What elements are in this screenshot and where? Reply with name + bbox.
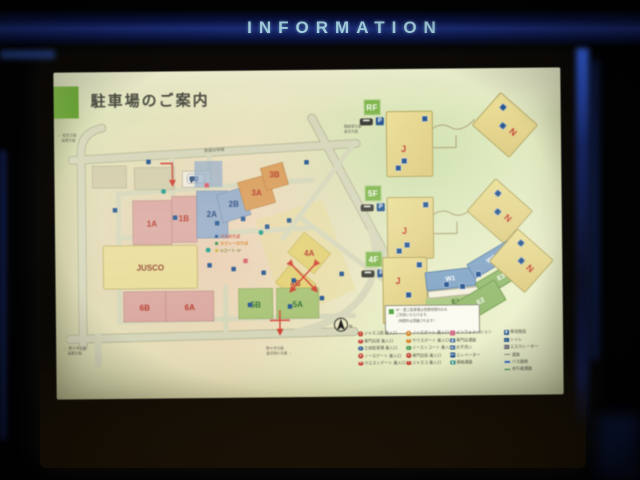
note-lines: 4F・屋上駐車場は営業時間内のみ ご利用いただけます。 （時間外は閉鎖されます） [396,308,448,332]
svg-text:4A: 4A [304,249,315,258]
elevator-icon [444,282,450,288]
legend-icon: S [406,338,411,343]
photo-of-information-sign: INFORMATION 駐車場のご案内 [0,0,640,480]
svg-text:1A: 1A [147,220,158,229]
map-legend: J ジャスコ前 乗入口 S 専門店前 乗入口 P 立体駐車場 乗入口 N ノース… [358,329,562,373]
parking-icon-small [404,242,410,248]
legend-icon: P [358,346,363,351]
legend-icon: 通 [450,338,455,343]
parking-guide-panel: 駐車場のご案内 [53,67,563,399]
information-header-band: INFORMATION [0,10,640,46]
legend-icon: W [358,361,363,366]
legend-item: N ノースポート 乗入口 [406,331,448,336]
floor-plans-panel: RF P J N 5F P J [354,92,564,396]
legend-item: P 立体駐車場 乗入口 [358,346,404,351]
legend-icon: 階 [504,330,509,335]
svg-text:← 松任方面: ← 松任方面 [58,132,77,137]
legend-column-4: 階 専用階段 ト トイレ ES エスカレーター 道路 バス路線 [504,329,562,371]
car-icon [360,118,373,125]
parking-icon-small [499,122,507,130]
legend-item: ES エスカレーター [504,344,562,349]
legend-item: S サウスポート 乗入口 [406,338,448,343]
floor-label-4f: 4F [365,251,382,267]
svg-text:6A: 6A [185,303,196,312]
neon-glow-bottom-right [598,415,640,480]
parking-icon: P [377,203,385,211]
svg-text:高尾方面: 高尾方面 [58,137,76,142]
jusco-label: JUSCO [137,264,165,273]
floor-label-rf: RF [364,99,381,115]
legend-item: i インフォメーション [450,330,502,335]
legend-item: 歩行者通路 [504,366,562,371]
svg-text:県道59号線: 県道59号線 [204,146,225,153]
svg-text:タクシーのりば: タクシーのりば [220,240,248,246]
legend-icon: ES [504,345,509,350]
information-title: INFORMATION [197,18,443,38]
svg-text:Gコート 1F: Gコート 1F [220,248,241,253]
elevator-icon [493,208,501,216]
elevator-icon [475,271,481,277]
legend-icon: N [406,331,411,336]
legend-icon: 連 [450,360,455,365]
svg-text:N: N [349,324,352,329]
floor-label-5f: 5F [364,185,381,201]
legend-item: J ジャスコ 乗入口 [406,360,448,365]
legend-icon: i [450,331,455,336]
road-bottom [70,332,354,340]
store-directory: バスのりば タクシーのりば Gコート 1F [215,233,248,253]
elevator-icon [422,116,428,122]
elevator-icon [499,103,507,111]
elevator-icon [494,189,502,197]
svg-text:5A: 5A [293,300,304,309]
legend-icon: ト [504,337,509,342]
legend-item: G 専門店街 乗入口 [406,353,448,358]
legend-icon [504,354,510,356]
legend-icon: J [406,361,411,366]
svg-text:← 野々市方面: ← 野々市方面 [64,345,87,350]
elevator-icon [423,202,429,208]
legend-item: E イーストコート 乗入口 [406,345,448,350]
legend-column-2: N ノースポート 乗入口 S サウスポート 乗入口 E イーストコート 乗入口 … [406,331,448,373]
legend-column-1: J ジャスコ前 乗入口 S 専門店前 乗入口 P 立体駐車場 乗入口 N ノース… [358,331,404,373]
legend-item: 階 専用階段 [504,329,562,334]
elevator-icon [416,262,422,268]
legend-item: 道路 [504,352,562,357]
legend-icon: S [358,339,363,344]
legend-icon [504,361,510,363]
legend-item: WC お手洗い [450,345,502,350]
legend-icon: EV [450,353,455,358]
svg-text:2B: 2B [229,200,240,209]
jusco-building: JUSCO [103,245,197,289]
stairs-icon [395,165,401,171]
legend-icon: E [406,346,411,351]
stairs-icon [401,158,407,164]
legend-item: ト トイレ [504,337,562,342]
svg-text:6B: 6B [140,304,151,313]
legend-item: J ジャスコ前 乗入口 [358,331,404,336]
legend-icon: J [358,332,363,337]
building-j-5f: J [387,197,435,259]
legend-column-3: i インフォメーション 通 専門店通路 WC お手洗い EV エレベーター 連 … [450,330,502,372]
svg-text:野々市方面: 野々市方面 [266,345,284,350]
svg-text:1B: 1B [179,214,190,223]
car-icon [361,204,374,211]
legend-icon [504,368,510,370]
legend-item: N ノースゲート 乗入口 [358,353,404,358]
neon-glow-right-outer [592,60,598,360]
legend-item: バス路線 [504,359,562,364]
neon-glow-left [0,150,6,440]
legend-item: 通 専門店通路 [450,337,502,342]
legend-item: EV エレベーター [450,352,502,357]
legend-icon: WC [450,345,455,350]
svg-text:高尾方面: 高尾方面 [64,350,82,355]
svg-text:バスのりば: バスのりば [220,233,240,239]
car-icon [361,270,374,277]
elevator-icon [460,283,466,289]
legend-item: 連 連絡通路 [450,360,502,365]
legend-item: S 専門店前 乗入口 [358,338,404,343]
elevator-icon [517,239,525,247]
parking-icon: P [376,117,384,125]
legend-item: W ウエストゲート 乗入口 [358,361,404,366]
svg-text:金沢西IC方面 →: 金沢西IC方面 → [266,350,292,355]
stairs-icon [396,248,402,254]
svg-text:3B: 3B [269,170,280,179]
svg-text:2A: 2A [207,210,218,219]
svg-text:3A: 3A [251,188,262,197]
elevator-icon [517,257,525,265]
elevator-icon [406,292,412,298]
legend-icon: G [406,353,411,358]
note-green-icon [389,309,394,314]
legend-icon: N [358,354,363,359]
building-j-rf: J [386,111,434,177]
